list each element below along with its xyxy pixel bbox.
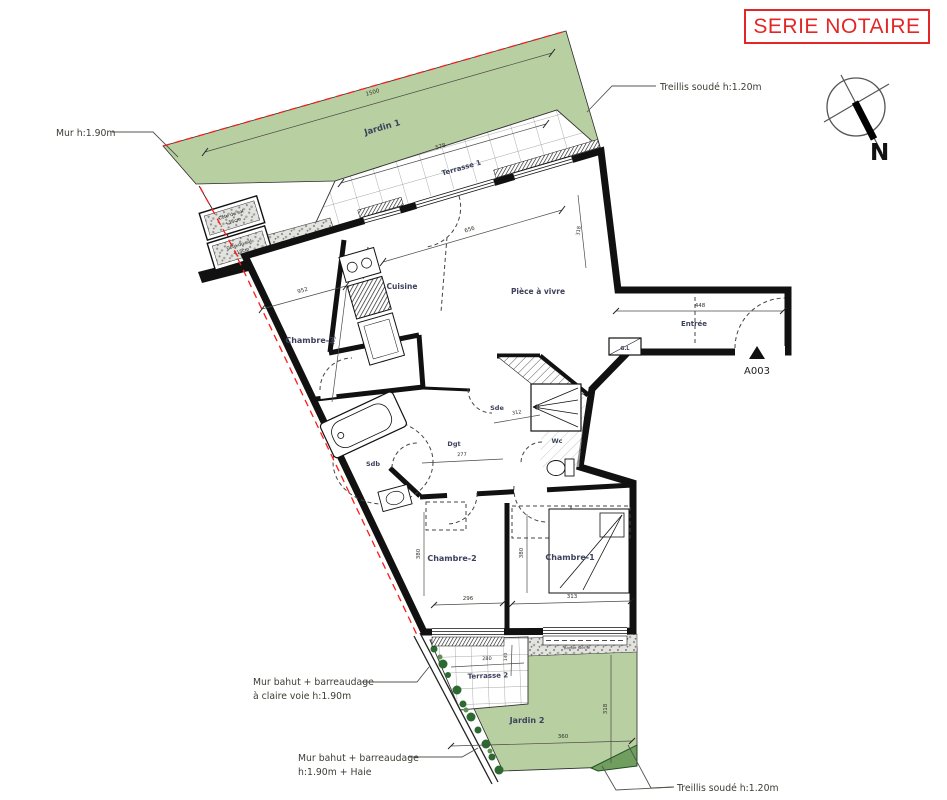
label-bande-sterile: Bande stérile bbox=[564, 645, 591, 650]
room-label-chambre3: Chambre-3 bbox=[285, 336, 334, 345]
dim-terrasse2-w: 280 bbox=[482, 656, 492, 662]
dim-entree-w: 448 bbox=[695, 303, 706, 309]
annotation-treillis-top: Treillis soudé h:1.20m bbox=[659, 82, 762, 93]
dim-chambre2-h: 380 bbox=[416, 548, 422, 559]
room-label-terrasse2: Terrasse 2 bbox=[467, 671, 508, 680]
dim-chambre1-h: 380 bbox=[519, 547, 525, 558]
gl-closet: G.L bbox=[609, 338, 641, 355]
floor-plan-drawing: Côte du sol +15cm Côte du sol +15cm bbox=[0, 0, 947, 800]
annotation-bahut-claire-2: à claire voie h:1.90m bbox=[253, 691, 351, 702]
dim-chambre2-w: 296 bbox=[463, 596, 474, 602]
dim-chambre1-w: 313 bbox=[567, 594, 578, 600]
shower-fixture bbox=[531, 384, 581, 431]
room-label-sdb: Sdb bbox=[366, 460, 380, 468]
compass-icon: N bbox=[824, 75, 889, 166]
annotation-bahut-claire-1: Mur bahut + barreaudage bbox=[253, 677, 374, 688]
annotation-treillis-bottom: Treillis soudé h:1.20m bbox=[676, 783, 779, 794]
bed-fixture bbox=[549, 509, 629, 593]
annotation-mur-left: Mur h:1.90m bbox=[56, 128, 115, 139]
annotation-bahut-haie-2: h:1.90m + Haie bbox=[298, 767, 372, 778]
annotation-bahut-haie-1: Mur bahut + barreaudage bbox=[298, 753, 419, 764]
north-label: N bbox=[870, 140, 889, 166]
room-label-wc: Wc bbox=[551, 437, 562, 445]
room-label-jardin2: Jardin 2 bbox=[509, 716, 545, 725]
room-label-gl: G.L bbox=[620, 346, 630, 352]
room-label-sde: Sde bbox=[490, 404, 504, 412]
dim-jardin2-h: 318 bbox=[603, 703, 609, 714]
room-label-chambre2: Chambre-2 bbox=[427, 554, 476, 563]
room-label-piece-a-vivre: Pièce à vivre bbox=[511, 287, 565, 296]
dim-terrasse2-h: 140 bbox=[503, 652, 509, 661]
dim-jardin2-w: 360 bbox=[558, 734, 569, 740]
dim-dgt-w: 277 bbox=[457, 452, 467, 458]
toilet-fixture bbox=[547, 459, 574, 476]
floor-plan-page: SERIE NOTAIRE bbox=[0, 0, 947, 800]
entry-ref-label: A003 bbox=[744, 366, 770, 377]
room-label-chambre1: Chambre-1 bbox=[545, 553, 595, 562]
room-label-dgt: Dgt bbox=[447, 440, 460, 448]
room-label-cuisine: Cuisine bbox=[387, 282, 418, 291]
room-label-entree: Entrée bbox=[681, 320, 707, 328]
